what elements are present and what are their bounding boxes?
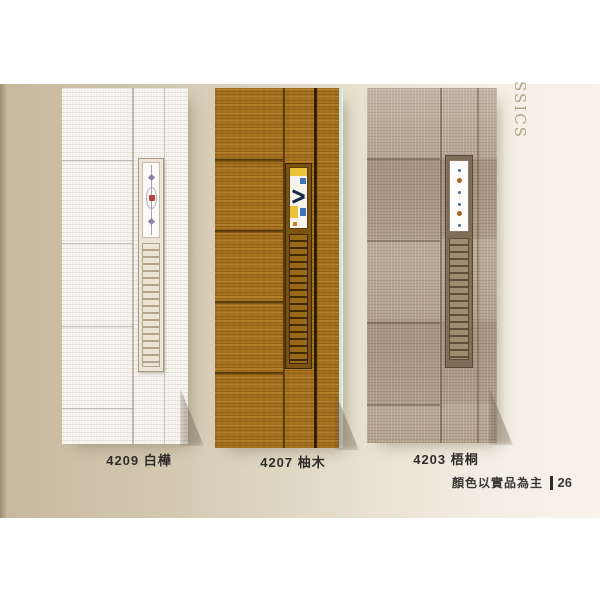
panel-stile-line	[164, 88, 165, 444]
product-label: 4209 白樺	[76, 450, 202, 469]
catalog-page: SSICS 4209 白樺	[0, 0, 600, 600]
color-disclaimer-text: 顏色以實品為主	[452, 474, 543, 491]
door-edge-highlight	[339, 88, 343, 448]
decorative-glass	[142, 162, 160, 238]
glass-dot-blue	[458, 191, 461, 194]
glass-dot-blue	[458, 203, 461, 206]
door-inset-strip	[445, 155, 473, 368]
decorative-glass	[449, 160, 469, 232]
collection-vertical-text: SSICS	[511, 81, 529, 139]
stained-glass-blue-square	[300, 208, 306, 216]
panel-stile-line	[132, 88, 134, 444]
product-code: 4203	[413, 452, 446, 467]
panel-stile-line	[440, 88, 442, 443]
stained-glass-zigzag	[292, 195, 305, 203]
door-inset-strip	[138, 158, 164, 372]
stained-glass-yellow-band	[290, 206, 298, 218]
product-name: 梧桐	[451, 452, 479, 467]
door-panel-teak	[215, 88, 343, 448]
product-label: 4207 柚木	[229, 452, 357, 471]
panel-groove	[367, 158, 440, 160]
panel-groove	[215, 301, 284, 304]
product-name: 柚木	[298, 455, 326, 470]
stained-glass-yellow-band	[290, 168, 307, 176]
page-left-edge-shading	[0, 84, 7, 518]
glass-gem-icon	[149, 195, 155, 201]
door-inset-strip	[285, 163, 312, 369]
panel-stile-line	[314, 88, 317, 448]
page-number: 26	[558, 475, 572, 490]
footer: 顏色以實品為主 26	[452, 474, 572, 491]
stained-glass-amber-dot	[293, 222, 297, 226]
louver-vent	[449, 238, 469, 360]
door-panel-birch	[62, 88, 188, 444]
glass-dot-amber	[457, 211, 462, 216]
stained-glass-blue-square	[300, 178, 306, 184]
louver-vent	[142, 243, 160, 367]
product-code: 4207	[260, 455, 293, 470]
product-name: 白樺	[144, 453, 172, 468]
glass-dot-blue	[458, 224, 461, 227]
panel-groove	[215, 230, 284, 233]
stained-glass	[289, 167, 308, 229]
panel-groove	[62, 160, 133, 162]
glass-dot-blue	[458, 169, 461, 172]
panel-stile-line	[477, 88, 479, 443]
page-number-divider	[550, 476, 553, 490]
product-code: 4209	[106, 453, 139, 468]
door-panel-paulownia	[367, 88, 497, 443]
panel-groove	[367, 240, 440, 242]
glass-dot-amber	[457, 178, 462, 183]
panel-groove	[62, 243, 133, 245]
panel-groove	[215, 159, 284, 162]
panel-groove	[62, 408, 133, 410]
panel-groove	[215, 372, 284, 375]
panel-groove	[367, 322, 440, 324]
panel-groove	[367, 404, 440, 406]
panel-groove	[62, 326, 133, 328]
glass-diamond-icon	[148, 218, 155, 225]
glass-diamond-icon	[148, 174, 155, 181]
louver-vent	[289, 234, 308, 364]
product-label: 4203 梧桐	[381, 449, 511, 468]
